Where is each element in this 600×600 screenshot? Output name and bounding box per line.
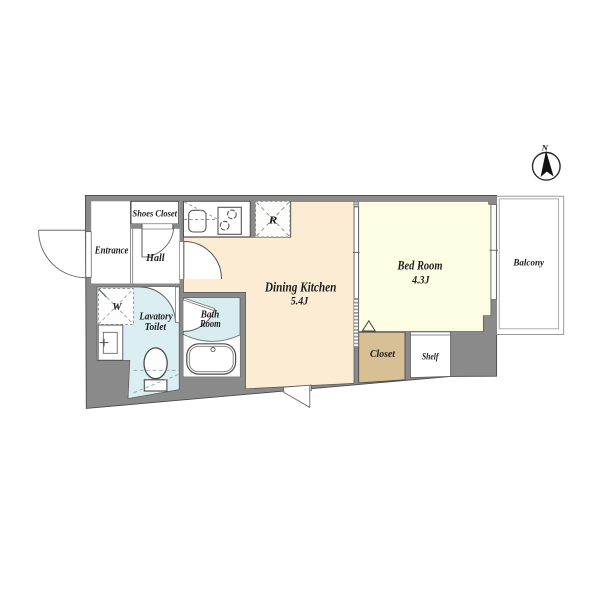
svg-text:Balcony: Balcony xyxy=(512,257,544,268)
svg-text:Hall: Hall xyxy=(145,253,165,264)
svg-text:W: W xyxy=(112,302,122,313)
svg-text:R: R xyxy=(267,216,277,227)
svg-text:4.3J: 4.3J xyxy=(411,274,430,286)
svg-text:Bed Room: Bed Room xyxy=(397,258,443,273)
svg-text:Toilet: Toilet xyxy=(145,322,168,333)
svg-text:N: N xyxy=(541,143,549,153)
svg-text:Lavatory: Lavatory xyxy=(138,311,173,322)
svg-text:Shelf: Shelf xyxy=(422,352,440,363)
svg-text:5.4J: 5.4J xyxy=(291,295,309,307)
svg-text:Shoes Closet: Shoes Closet xyxy=(133,209,178,220)
svg-text:Entrance: Entrance xyxy=(94,246,129,257)
svg-text:Dining Kitchen: Dining Kitchen xyxy=(264,279,336,294)
svg-text:Closet: Closet xyxy=(370,349,396,360)
svg-text:Room: Room xyxy=(199,319,221,330)
